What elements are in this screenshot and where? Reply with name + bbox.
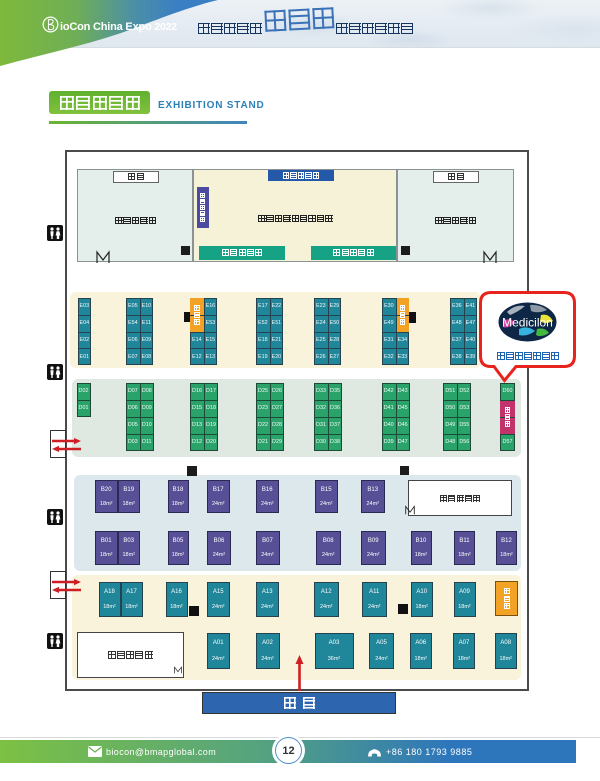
svg-text:Medicilon: Medicilon [502, 316, 553, 330]
